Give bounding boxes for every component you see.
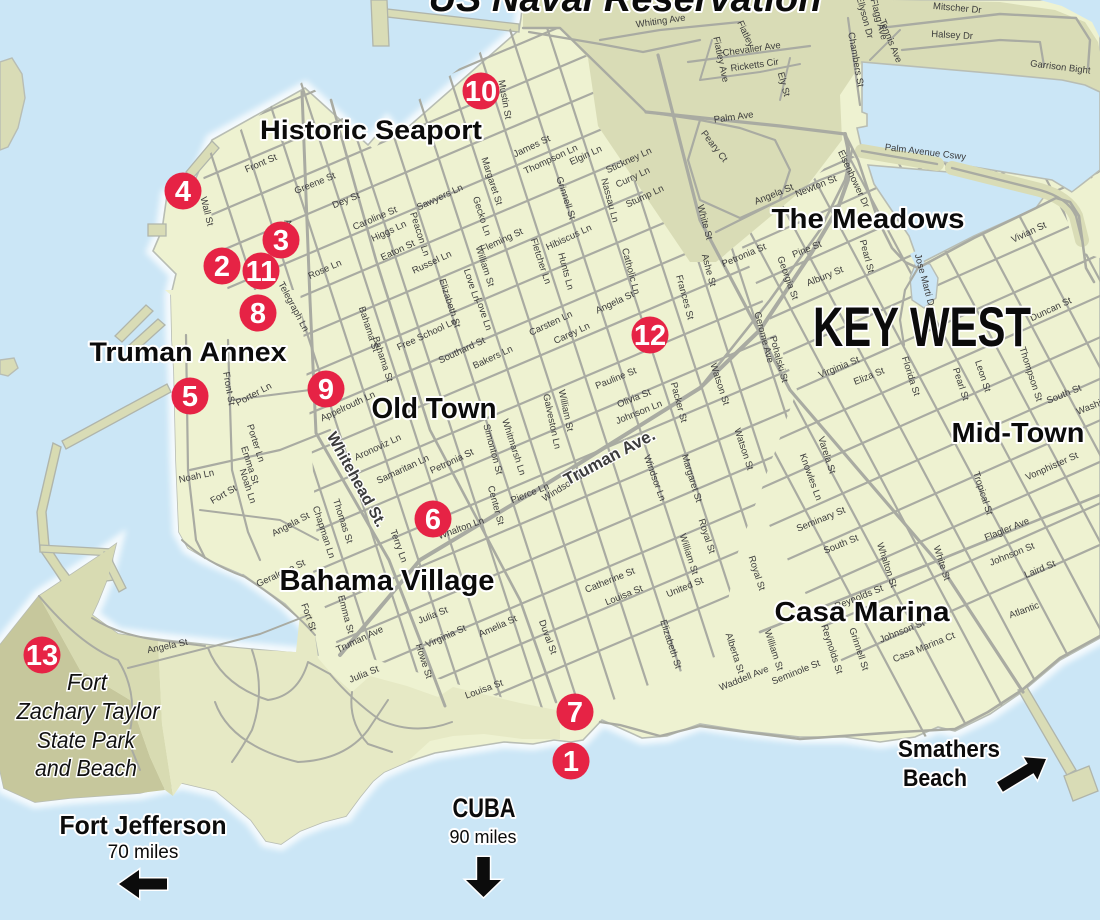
svg-text:Fort: Fort <box>67 669 109 695</box>
svg-text:90 miles: 90 miles <box>449 827 516 847</box>
svg-text:10: 10 <box>465 76 497 108</box>
svg-text:13: 13 <box>26 640 58 672</box>
svg-text:State Park: State Park <box>37 727 136 753</box>
svg-text:9: 9 <box>318 374 334 406</box>
svg-text:Casa Marina: Casa Marina <box>775 596 950 627</box>
svg-text:7: 7 <box>567 697 583 729</box>
svg-text:Zachary Taylor: Zachary Taylor <box>16 698 161 724</box>
svg-text:8: 8 <box>250 298 266 330</box>
svg-text:5: 5 <box>182 381 198 413</box>
svg-text:Halsey Dr: Halsey Dr <box>931 29 973 42</box>
svg-text:US Naval Reservation: US Naval Reservation <box>429 0 822 20</box>
svg-text:3: 3 <box>273 225 289 257</box>
svg-text:Truman Annex: Truman Annex <box>90 337 287 367</box>
svg-text:The Meadows: The Meadows <box>772 203 965 234</box>
svg-text:4: 4 <box>175 176 191 208</box>
svg-text:CUBA: CUBA <box>453 793 516 823</box>
svg-text:Old Town: Old Town <box>372 393 497 425</box>
svg-text:Historic Seaport: Historic Seaport <box>260 115 482 145</box>
svg-text:Mid-Town: Mid-Town <box>952 417 1085 448</box>
svg-text:KEY WEST: KEY WEST <box>813 295 1031 358</box>
svg-text:2: 2 <box>214 251 230 283</box>
svg-text:6: 6 <box>425 504 441 536</box>
svg-text:11: 11 <box>246 256 277 288</box>
svg-text:70 miles: 70 miles <box>108 842 179 863</box>
svg-text:1: 1 <box>563 746 579 778</box>
svg-text:12: 12 <box>634 320 666 352</box>
svg-text:Fort Jefferson: Fort Jefferson <box>60 810 227 840</box>
svg-text:Smathers: Smathers <box>898 736 1000 763</box>
svg-text:Bahama Village: Bahama Village <box>280 565 495 597</box>
svg-text:and Beach: and Beach <box>35 755 137 781</box>
svg-text:Beach: Beach <box>903 765 967 792</box>
